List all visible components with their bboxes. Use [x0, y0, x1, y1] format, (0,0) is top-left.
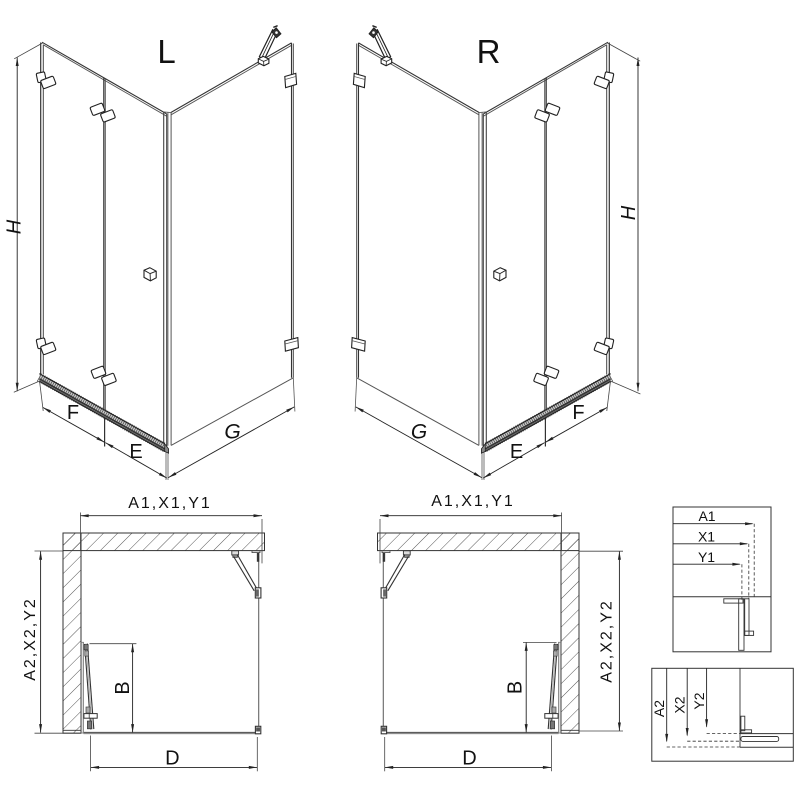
svg-text:A2,X2,Y2: A2,X2,Y2	[599, 599, 616, 683]
svg-text:R: R	[477, 33, 501, 70]
svg-text:A2: A2	[651, 700, 667, 717]
svg-text:F: F	[67, 402, 79, 424]
svg-text:A1,X1,Y1: A1,X1,Y1	[431, 493, 515, 510]
svg-text:H: H	[618, 205, 640, 220]
svg-text:D: D	[462, 747, 476, 769]
svg-text:X1: X1	[698, 529, 715, 545]
svg-text:X2: X2	[672, 696, 688, 713]
svg-text:B: B	[505, 681, 527, 694]
svg-text:E: E	[510, 441, 523, 463]
svg-text:L: L	[157, 33, 175, 70]
svg-text:F: F	[572, 402, 584, 424]
svg-text:B: B	[112, 681, 134, 694]
svg-text:H: H	[4, 219, 26, 234]
svg-text:A2,X2,Y2: A2,X2,Y2	[22, 597, 39, 681]
svg-text:A1: A1	[698, 508, 715, 524]
svg-text:G: G	[411, 420, 427, 443]
svg-text:Y1: Y1	[698, 549, 715, 565]
svg-text:D: D	[165, 747, 179, 769]
svg-text:Y2: Y2	[691, 692, 707, 709]
svg-text:G: G	[224, 420, 240, 443]
svg-text:E: E	[129, 441, 142, 463]
svg-text:A1,X1,Y1: A1,X1,Y1	[128, 495, 212, 512]
